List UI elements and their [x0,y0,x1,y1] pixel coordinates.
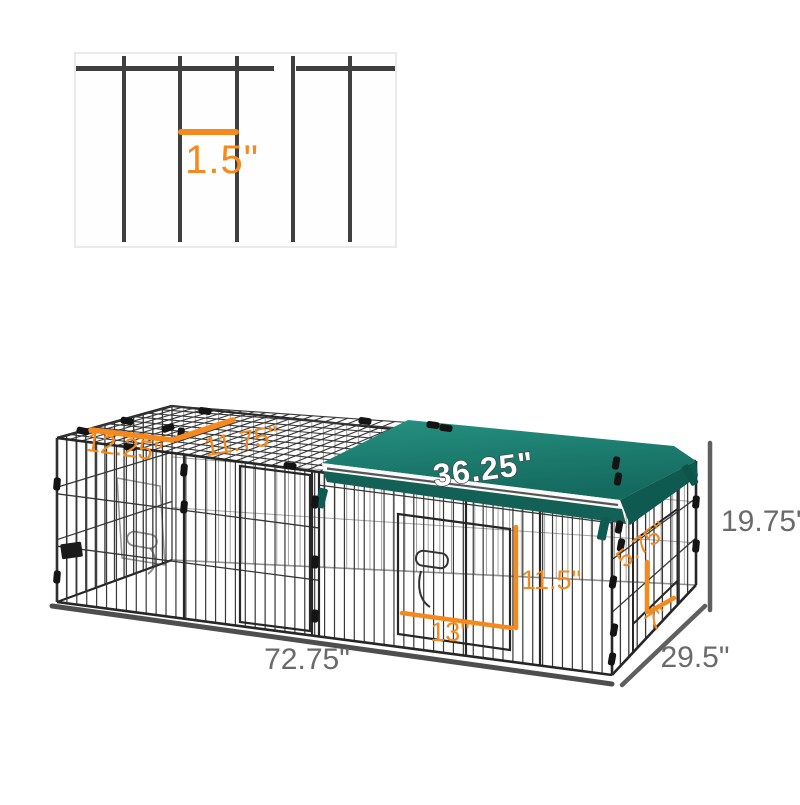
overall-depth-label: 29.5" [660,641,729,674]
front-door-width-label: 13" [430,617,470,647]
front-door-height-label: 11.5" [521,565,581,595]
wire-spacing-inset: 1.5" [74,52,397,248]
product-dimension-image: 1.5" [0,0,800,800]
clamp [311,609,319,623]
clamp [180,463,188,477]
wire-bar [291,56,295,242]
clamp [692,495,700,509]
wire-spacing-label: 1.5" [172,138,272,183]
clamp [180,500,188,514]
clamp [607,652,616,666]
clamp [311,495,319,509]
product-tag [60,542,83,560]
clamp [692,539,700,553]
wire-bar [122,56,126,242]
clamp [53,570,61,584]
interior-latch-hook [148,548,155,574]
overall-height-label: 19.75" [721,505,800,538]
clamp [608,575,617,589]
clamp [53,477,61,491]
wire-bar [348,56,352,242]
wire-spacing-measure-line [178,129,239,135]
wire-crossbar-segment [296,66,395,71]
clamp [311,555,319,569]
door-latch-hook [419,571,430,607]
wire-crossbar-segment [76,66,274,71]
clamp [198,407,212,416]
overall-length-label: 72.75" [264,643,350,676]
